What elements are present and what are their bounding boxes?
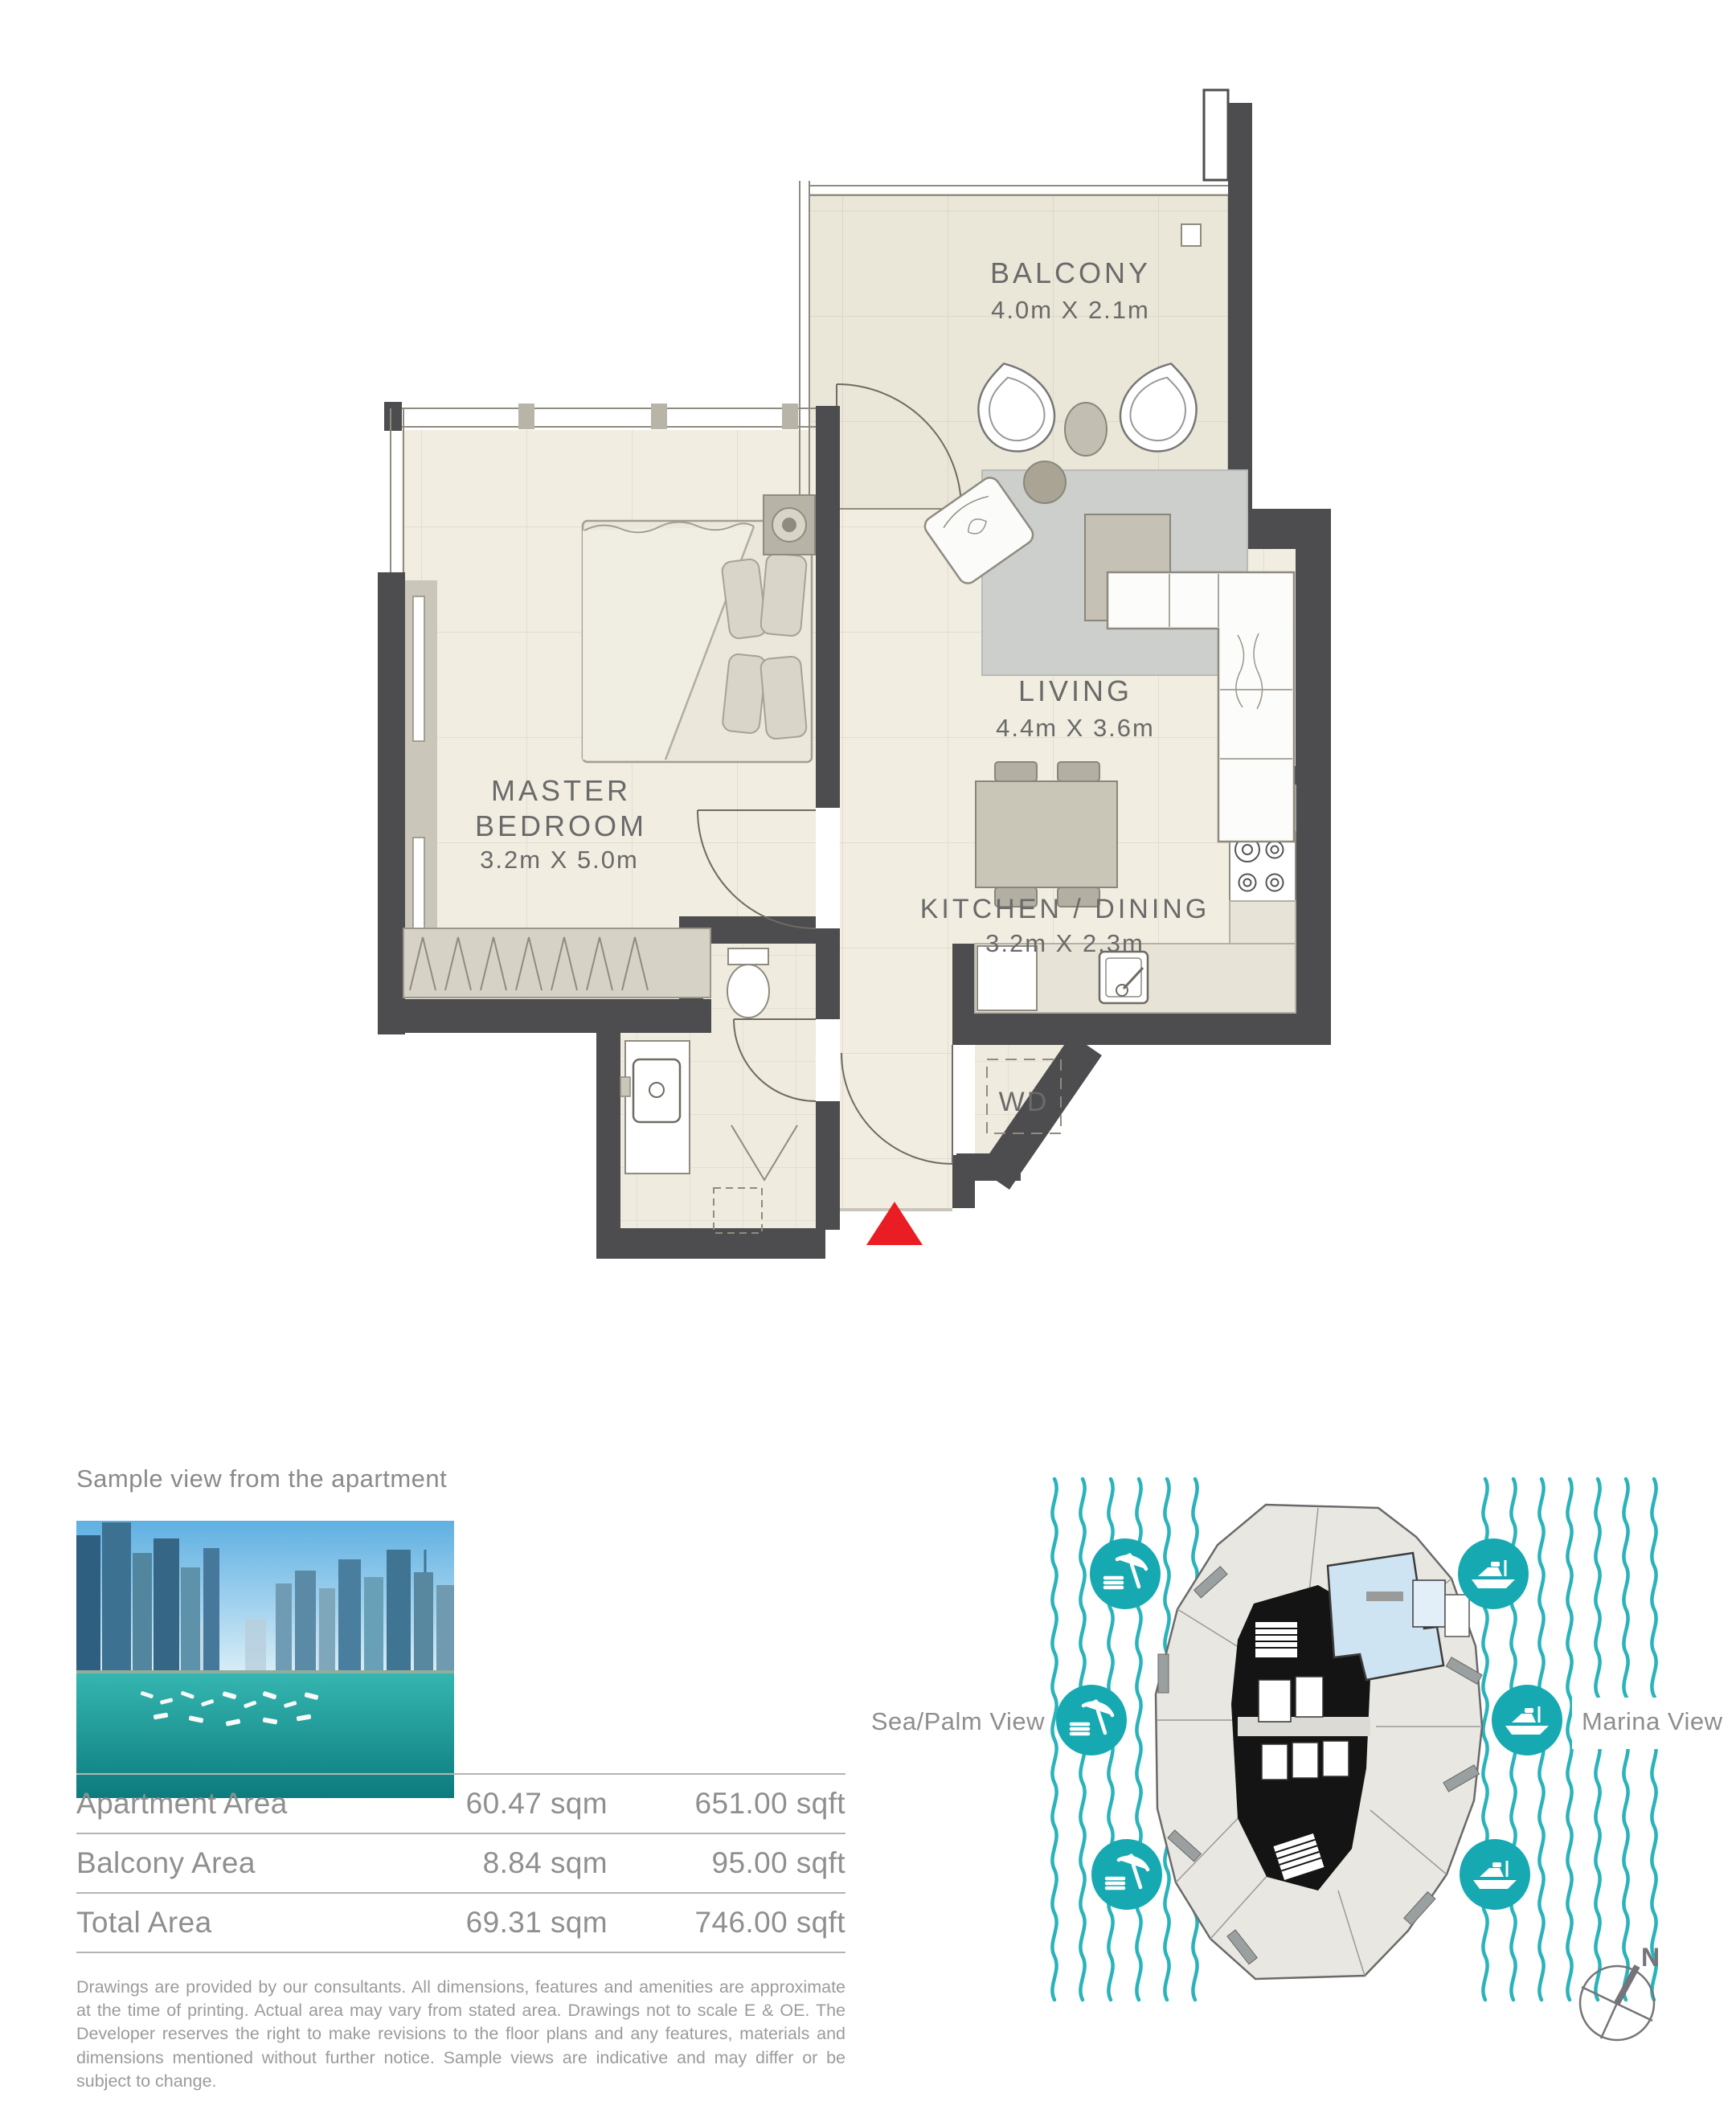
marina-view-label: Marina View: [1582, 1707, 1723, 1735]
compass-north-label: N: [1641, 1943, 1660, 1972]
bedroom-divider-wall: [816, 406, 840, 808]
kitchen-dining-label: KITCHEN / DINING: [920, 894, 1210, 924]
area-sqft: 651.00 sqft: [608, 1787, 845, 1821]
bathroom-bottom-wall: [596, 1228, 825, 1259]
key-plan: Sea/Palm View Marina View: [871, 1479, 1736, 2000]
area-table-row-total: Total Area 69.31 sqm 746.00 sqft: [76, 1894, 845, 1953]
master-bedroom-label-1: MASTER: [491, 774, 631, 807]
disclaimer-text: Drawings are provided by our consultants…: [76, 1976, 845, 2093]
compass: N: [1580, 1943, 1660, 2040]
core-corridor: [1238, 1717, 1370, 1736]
laundry-label: WD: [999, 1087, 1050, 1117]
kitchen-dining-dims: 3.2m X 2.3m: [985, 929, 1144, 957]
area-sqm: 8.84 sqm: [400, 1846, 608, 1880]
area-table-row-apartment: Apartment Area 60.47 sqm 651.00 sqft: [76, 1773, 845, 1834]
vanity-sink: [620, 1041, 690, 1174]
area-sqft: 746.00 sqft: [608, 1906, 845, 1940]
divider-wall-seg: [816, 1101, 840, 1230]
area-label: Total Area: [76, 1906, 400, 1940]
area-sqft: 95.00 sqft: [608, 1846, 845, 1880]
floor-plan-brochure-page: BALCONY 4.0m X 2.1m LIVING 4.4m X 3.6m M…: [0, 0, 1736, 2122]
bathroom-outer-wall: [596, 1009, 620, 1228]
divider-wall-seg: [816, 928, 840, 1019]
sample-view-caption: Sample view from the apartment: [76, 1465, 447, 1493]
sample-view-photo: [76, 1521, 454, 1798]
kitchen-bottom-wall: [952, 1013, 1331, 1045]
bed: [583, 521, 812, 762]
window-slot: [413, 596, 424, 741]
living-right-wall: [1296, 549, 1331, 1045]
living-label: LIVING: [1018, 674, 1132, 707]
hall-right-wall: [952, 944, 975, 1045]
master-bedroom-label-2: BEDROOM: [475, 809, 647, 842]
shaft-outline: [1204, 90, 1228, 180]
balcony-dims: 4.0m X 2.1m: [991, 296, 1150, 324]
nightstand: [764, 495, 815, 555]
living-dims: 4.4m X 3.6m: [996, 714, 1155, 742]
balcony-table: [1065, 403, 1107, 456]
building-floor-plate: [1156, 1505, 1482, 1979]
balcony-right-wall: [1228, 103, 1252, 509]
area-table-row-balcony: Balcony Area 8.84 sqm 95.00 sqft: [76, 1834, 845, 1894]
bedroom-left-wall: [378, 572, 405, 1034]
dining-table: [976, 781, 1117, 887]
area-label: Balcony Area: [76, 1846, 400, 1880]
master-bedroom-dims: 3.2m X 5.0m: [480, 846, 639, 874]
toilet: [727, 948, 769, 1018]
area-sqm: 69.31 sqm: [400, 1906, 608, 1940]
balcony-floor: [809, 195, 1228, 509]
sea-palm-view-label: Sea/Palm View: [871, 1707, 1045, 1735]
balcony-label: BALCONY: [990, 256, 1151, 289]
wardrobe: [403, 928, 710, 998]
apartment-floor-plan: BALCONY 4.0m X 2.1m LIVING 4.4m X 3.6m M…: [378, 90, 1331, 1259]
dining-set: [976, 762, 1117, 907]
area-label: Apartment Area: [76, 1787, 400, 1821]
side-table-round: [1024, 461, 1066, 503]
area-sqm: 60.47 sqm: [400, 1787, 608, 1821]
kitchen-sink: [1099, 952, 1148, 1003]
area-table: Apartment Area 60.47 sqm 651.00 sqft Bal…: [76, 1773, 845, 1953]
balcony-drain-box: [1181, 224, 1201, 246]
